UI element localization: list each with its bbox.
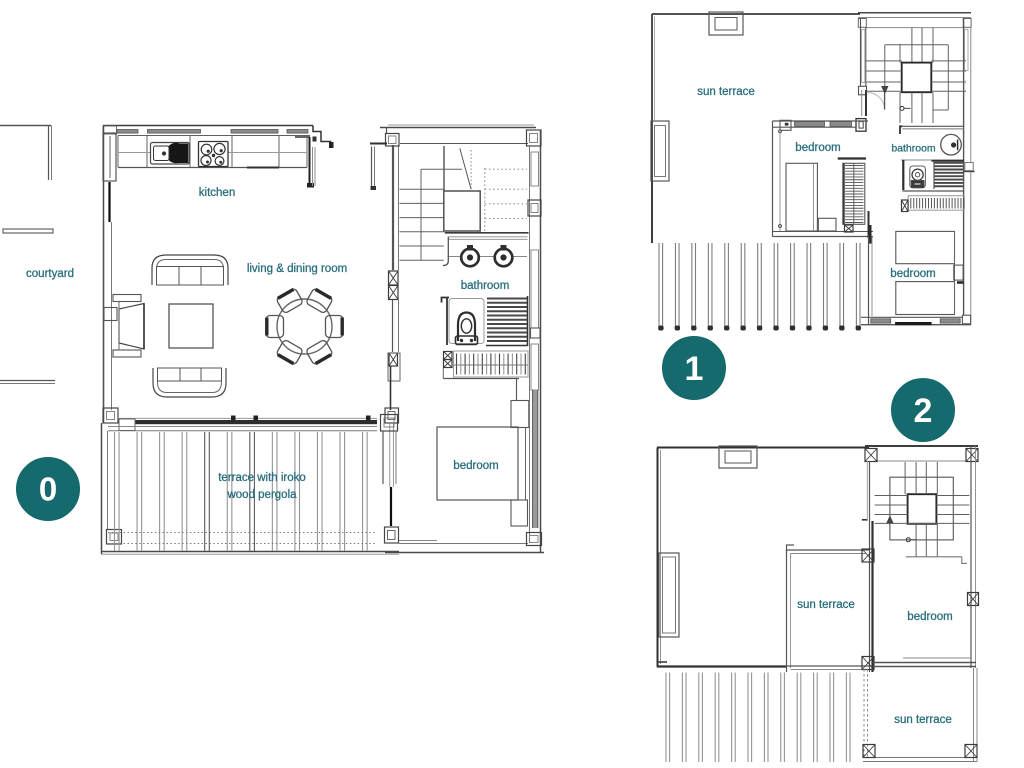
svg-text:courtyard: courtyard — [26, 268, 74, 280]
svg-text:bedroom: bedroom — [795, 142, 840, 154]
svg-text:0: 0 — [39, 471, 57, 508]
svg-text:bathroom: bathroom — [461, 280, 510, 292]
svg-text:kitchen: kitchen — [199, 187, 235, 199]
svg-text:terrace with iroko: terrace with iroko — [218, 472, 306, 484]
svg-text:2: 2 — [914, 392, 933, 430]
svg-text:sun terrace: sun terrace — [894, 714, 952, 726]
svg-text:living & dining room: living & dining room — [247, 263, 347, 275]
svg-text:bathroom: bathroom — [891, 143, 936, 155]
svg-text:bedroom: bedroom — [453, 460, 498, 472]
svg-text:bedroom: bedroom — [907, 611, 952, 623]
svg-text:wood pergola: wood pergola — [226, 489, 297, 501]
svg-text:sun terrace: sun terrace — [797, 599, 855, 611]
svg-text:bedroom: bedroom — [890, 268, 935, 280]
svg-text:sun terrace: sun terrace — [697, 86, 755, 98]
svg-text:1: 1 — [685, 350, 704, 388]
